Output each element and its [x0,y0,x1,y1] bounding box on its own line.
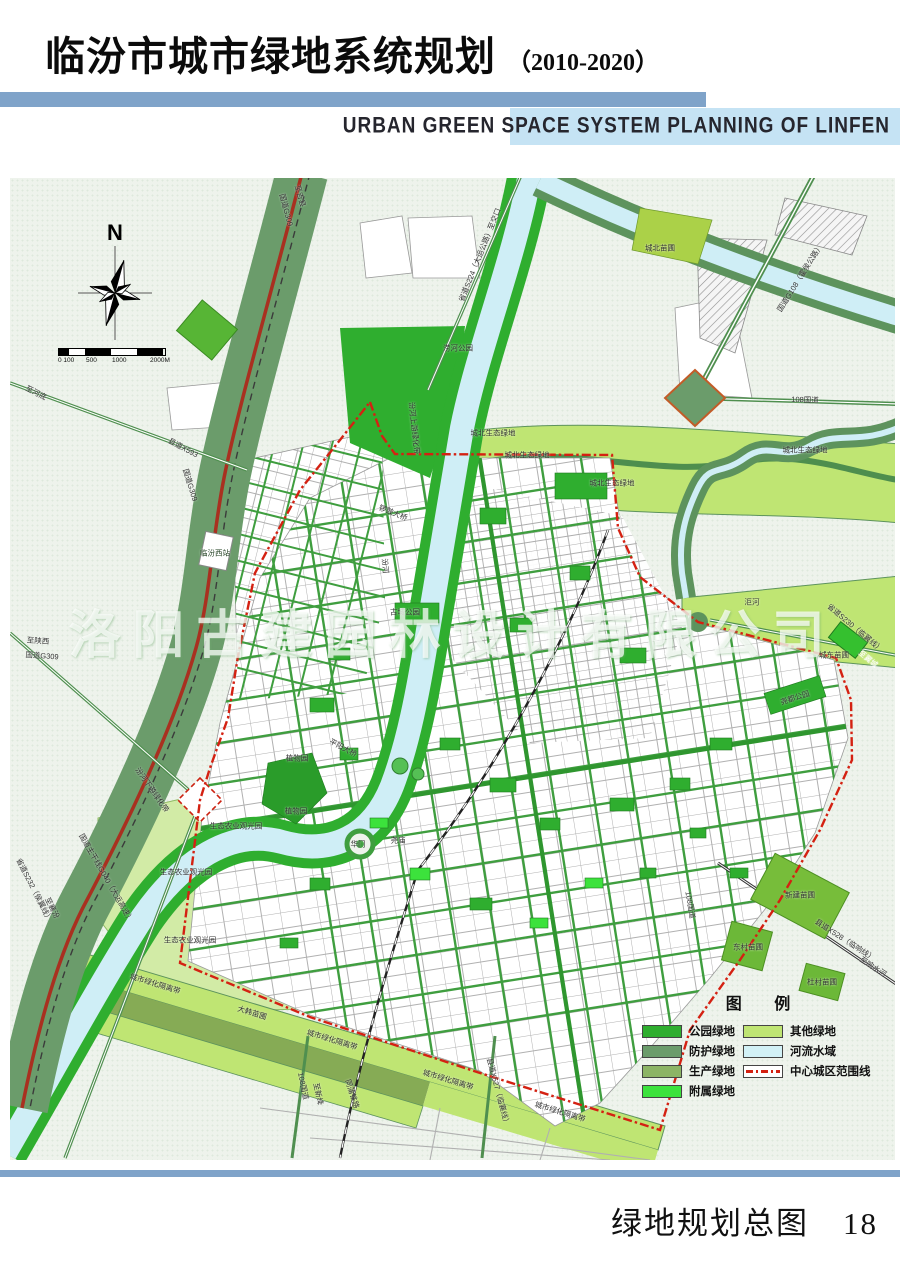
map-label: 城北生态绿地 [471,429,516,437]
legend-item-label: 附属绿地 [689,1083,735,1099]
map-label: 杜村苗圃 [807,978,837,986]
page-title-year: （2010-2020） [507,50,659,76]
header-rule [0,92,706,107]
page-title-cn: 临汾市城市绿地系统规划 [45,34,496,79]
legend: 图 例 公园绿地防护绿地生产绿地附属绿地 其他绿地河流水域中心城区范围线 [642,990,888,1116]
map-label: 生态农业观光园 [210,822,263,830]
scale-tick: 2000M [150,357,170,364]
legend-color-swatch [642,1045,682,1058]
map-label: 生态农业观光园 [164,936,217,944]
map-label: 生态农业观光园 [160,868,213,876]
map-label: 东村苗圃 [733,943,763,951]
scale-bar: 0 10050010002000M [58,348,176,366]
subtitle-en: URBAN GREEN SPACE SYSTEM PLANNING OF LIN… [343,114,890,139]
legend-item-label: 公园绿地 [689,1023,735,1039]
legend-color-swatch [642,1065,682,1078]
map-label: 城北生态绿地 [783,446,828,454]
legend-item-label: 河流水域 [790,1043,836,1059]
legend-column-left: 公园绿地防护绿地生产绿地附属绿地 [642,1024,735,1098]
legend-item: 中心城区范围线 [743,1064,871,1078]
map-label: 植物园 [286,754,309,762]
map-label: 城北苗圃 [645,244,675,252]
legend-item-label: 防护绿地 [689,1043,735,1059]
legend-item-label: 其他绿地 [790,1023,836,1039]
map-label: 108国道 [791,396,819,404]
legend-item: 生产绿地 [642,1064,735,1078]
map-label: 新建苗圃 [785,891,815,899]
legend-item: 防护绿地 [642,1044,735,1058]
map-label: 城北生态绿地 [590,479,635,487]
page-title: 临汾市城市绿地系统规划 （2010-2020） [45,24,659,82]
legend-item-label: 中心城区范围线 [790,1063,871,1079]
map-canvas: N [10,178,895,1160]
legend-item-label: 生产绿地 [689,1063,735,1079]
map-label: 临汾西站 [200,549,230,557]
footer-rule [0,1170,900,1177]
page-number: 18 [843,1206,878,1241]
legend-color-swatch [642,1085,682,1098]
planning-sheet: 临汾市城市绿地系统规划 （2010-2020） URBAN GREEN SPAC… [0,0,900,1273]
map-label: 植物园 [285,807,308,815]
north-arrow: N [70,218,160,353]
sheet-title: 绿地规划总图 [611,1206,809,1241]
map-label: 城北生态绿地 [505,451,550,459]
map-label: 尧庙 [391,836,406,844]
legend-color-swatch [743,1045,783,1058]
subtitle-bar: URBAN GREEN SPACE SYSTEM PLANNING OF LIN… [510,108,900,145]
scale-bar-segments [58,348,166,356]
scale-tick: 1000 [112,357,126,364]
map-label: 涝河公园 [443,344,473,352]
north-label: N [107,220,123,245]
legend-color-swatch [642,1025,682,1038]
footer-caption: 绿地规划总图18 [611,1198,878,1243]
legend-item: 公园绿地 [642,1024,735,1038]
legend-title: 图 例 [642,990,888,1014]
watermark: 洛阳古建园林设计有限公司 [20,593,885,668]
scale-tick: 0 100 [58,357,74,364]
scale-bar-ticks: 0 10050010002000M [58,356,176,366]
legend-boundary-swatch [743,1065,783,1078]
legend-item: 附属绿地 [642,1084,735,1098]
legend-column-right: 其他绿地河流水域中心城区范围线 [743,1024,871,1098]
legend-color-swatch [743,1025,783,1038]
legend-item: 其他绿地 [743,1024,871,1038]
map-label: 华门 [351,840,366,848]
scale-tick: 500 [86,357,97,364]
map-label: 汾河 [380,558,389,574]
legend-item: 河流水域 [743,1044,871,1058]
